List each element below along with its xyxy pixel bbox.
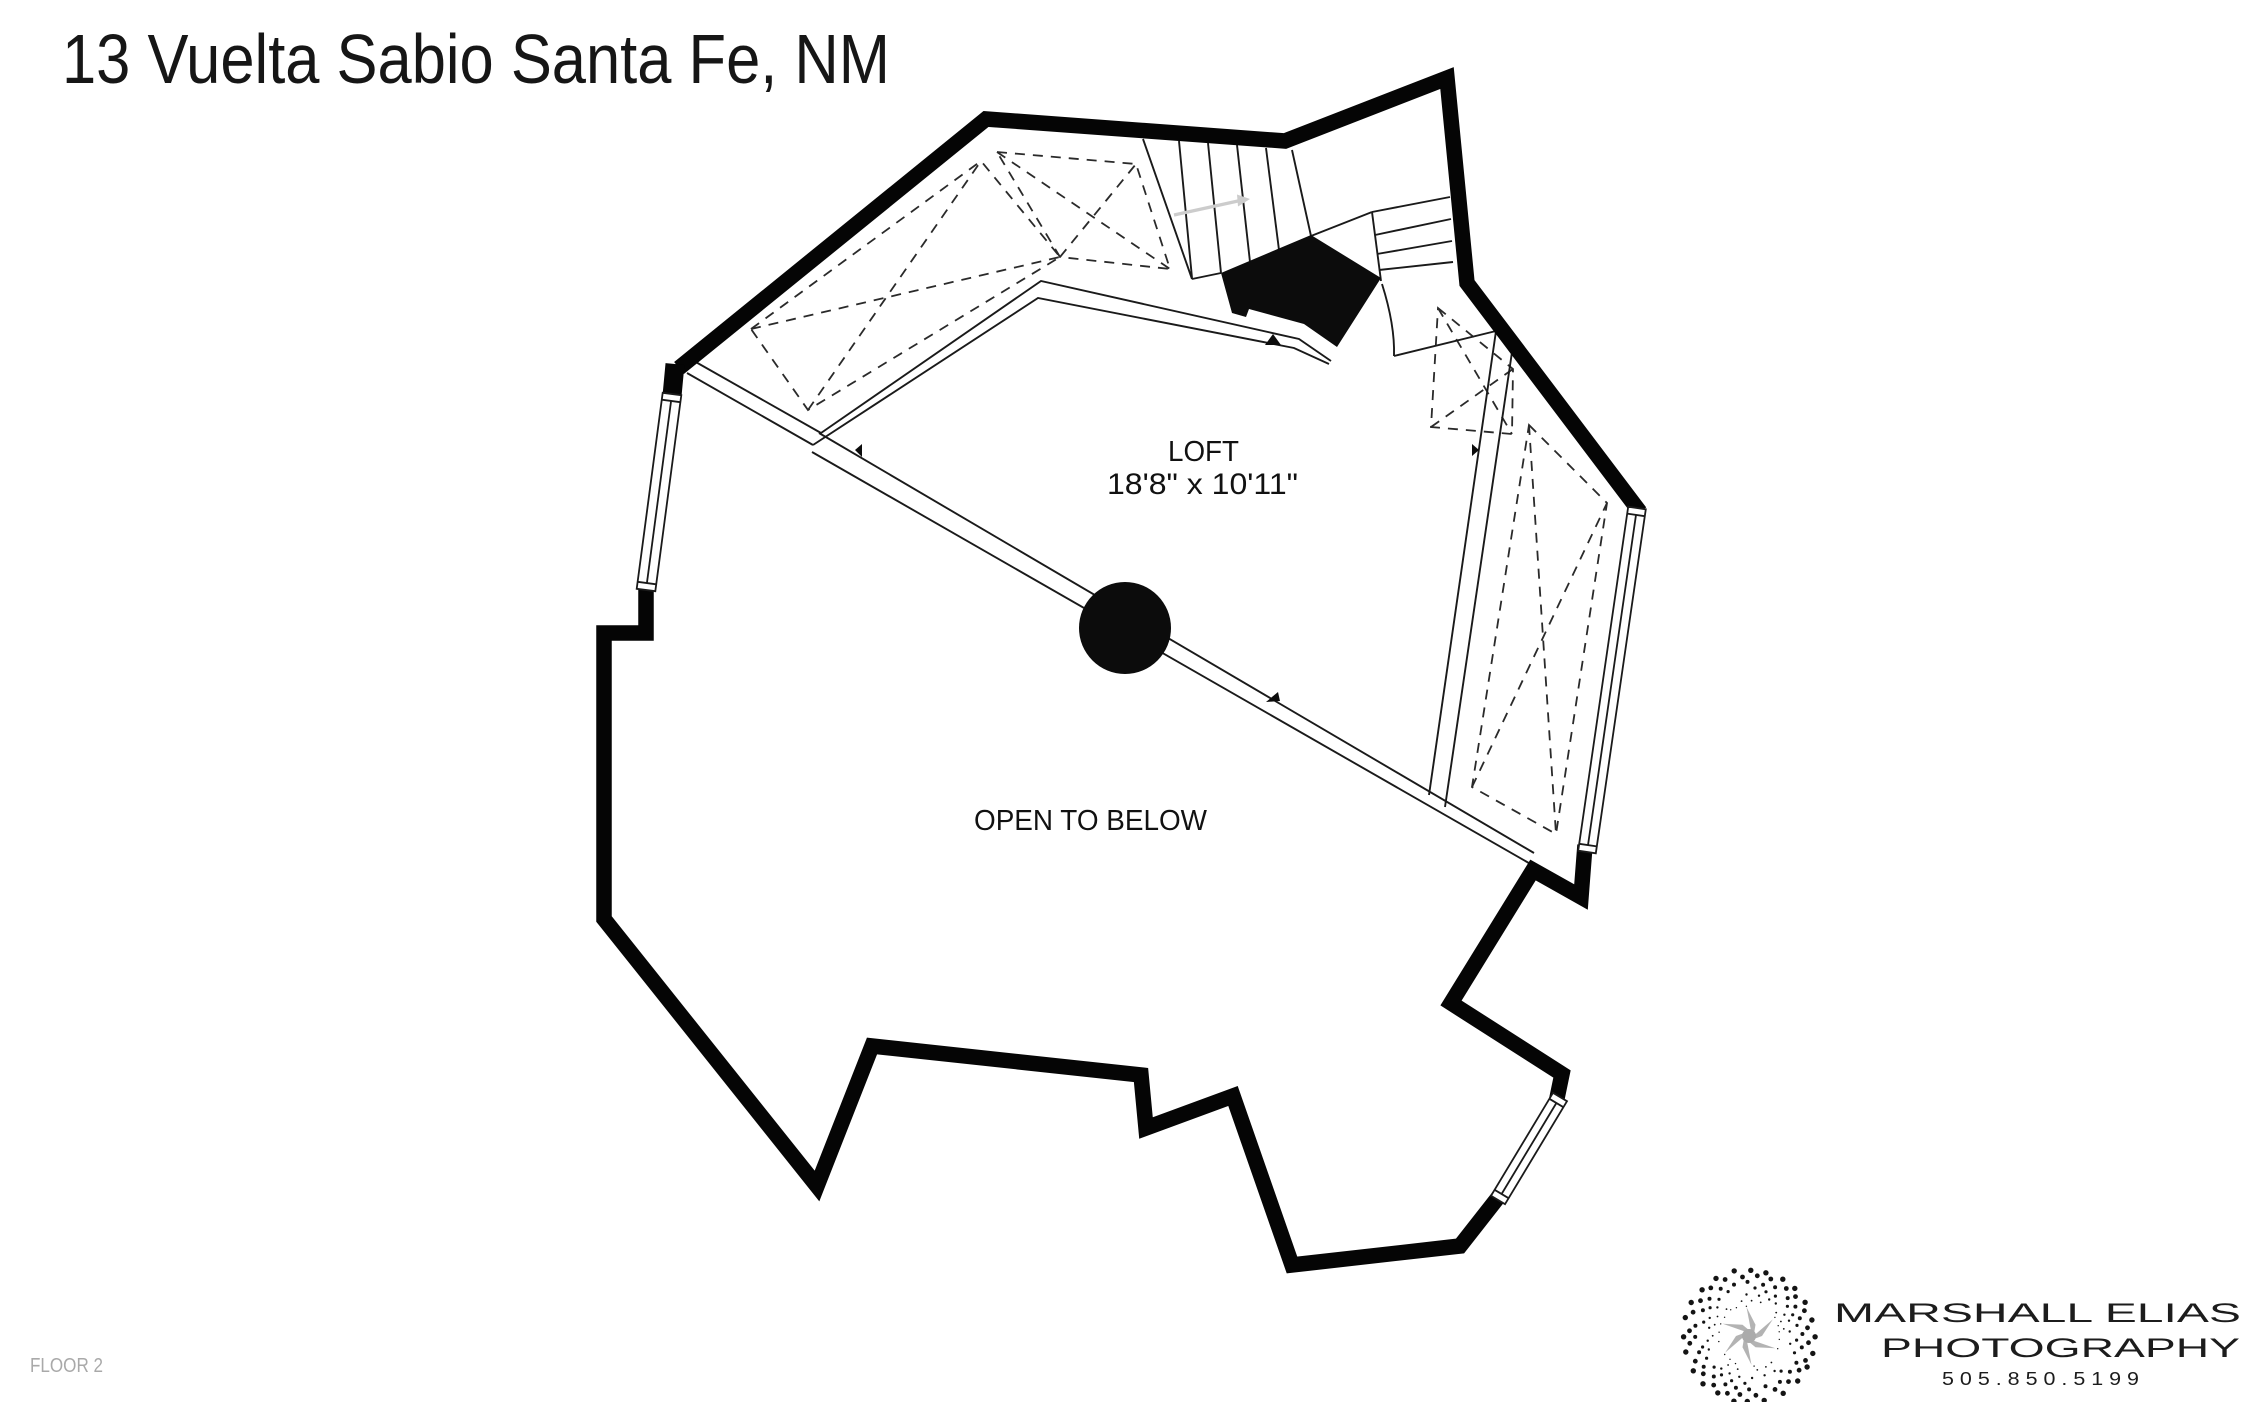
svg-text:PHOTOGRAPHY: PHOTOGRAPHY xyxy=(1881,1333,2240,1363)
svg-text:MARSHALL ELIAS: MARSHALL ELIAS xyxy=(1834,1298,2241,1328)
svg-text:OPEN TO BELOW: OPEN TO BELOW xyxy=(974,805,1208,837)
svg-text:5 0 5 . 8 5 0 . 5 1 9 9: 5 0 5 . 8 5 0 . 5 1 9 9 xyxy=(1942,1369,2139,1389)
svg-text:LOFT: LOFT xyxy=(1168,436,1239,468)
svg-text:FLOOR 2: FLOOR 2 xyxy=(30,1355,103,1377)
svg-text:18'8" x 10'11": 18'8" x 10'11" xyxy=(1107,468,1298,501)
svg-text:13 Vuelta Sabio Santa Fe, NM: 13 Vuelta Sabio Santa Fe, NM xyxy=(62,20,890,98)
